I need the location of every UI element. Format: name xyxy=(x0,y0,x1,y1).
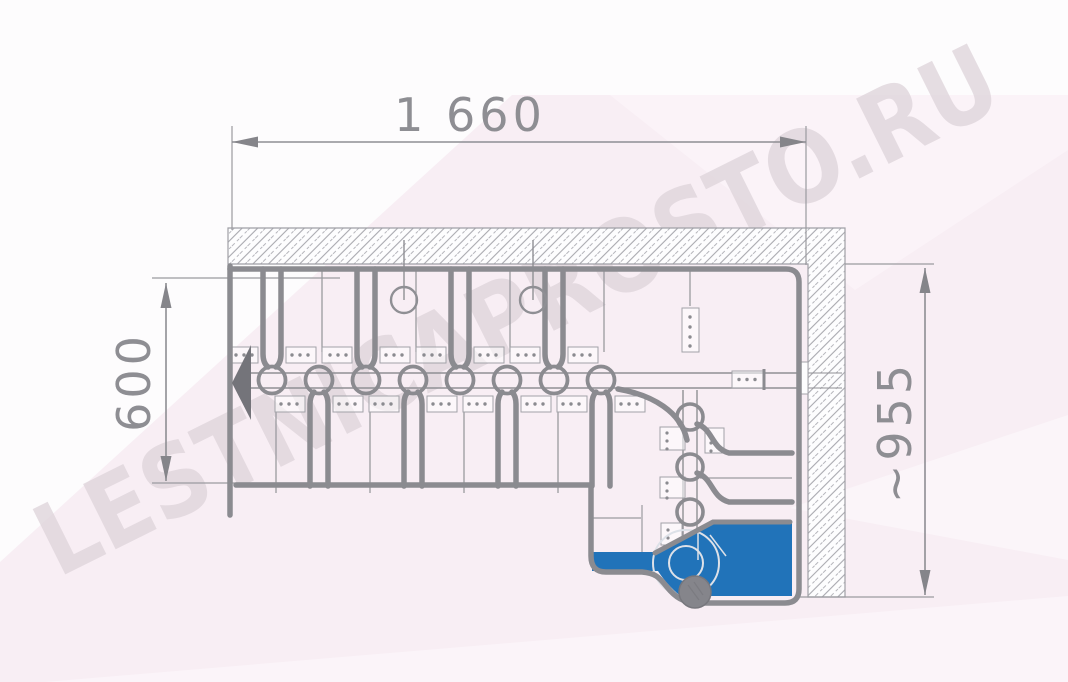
drawing-canvas: LESTNICAPROSTO.RU 1 660 600 ~955 xyxy=(0,0,1068,682)
stair-plan-drawing: LESTNICAPROSTO.RU 1 660 600 ~955 xyxy=(0,0,1068,682)
dimension-flight-width: 600 xyxy=(107,332,161,432)
newel-post xyxy=(679,576,711,608)
tread-plate xyxy=(660,477,685,498)
post-circle xyxy=(679,576,711,608)
dimension-turn-extent: ~955 xyxy=(868,361,922,503)
dimension-overall-length: 1 660 xyxy=(394,88,546,142)
